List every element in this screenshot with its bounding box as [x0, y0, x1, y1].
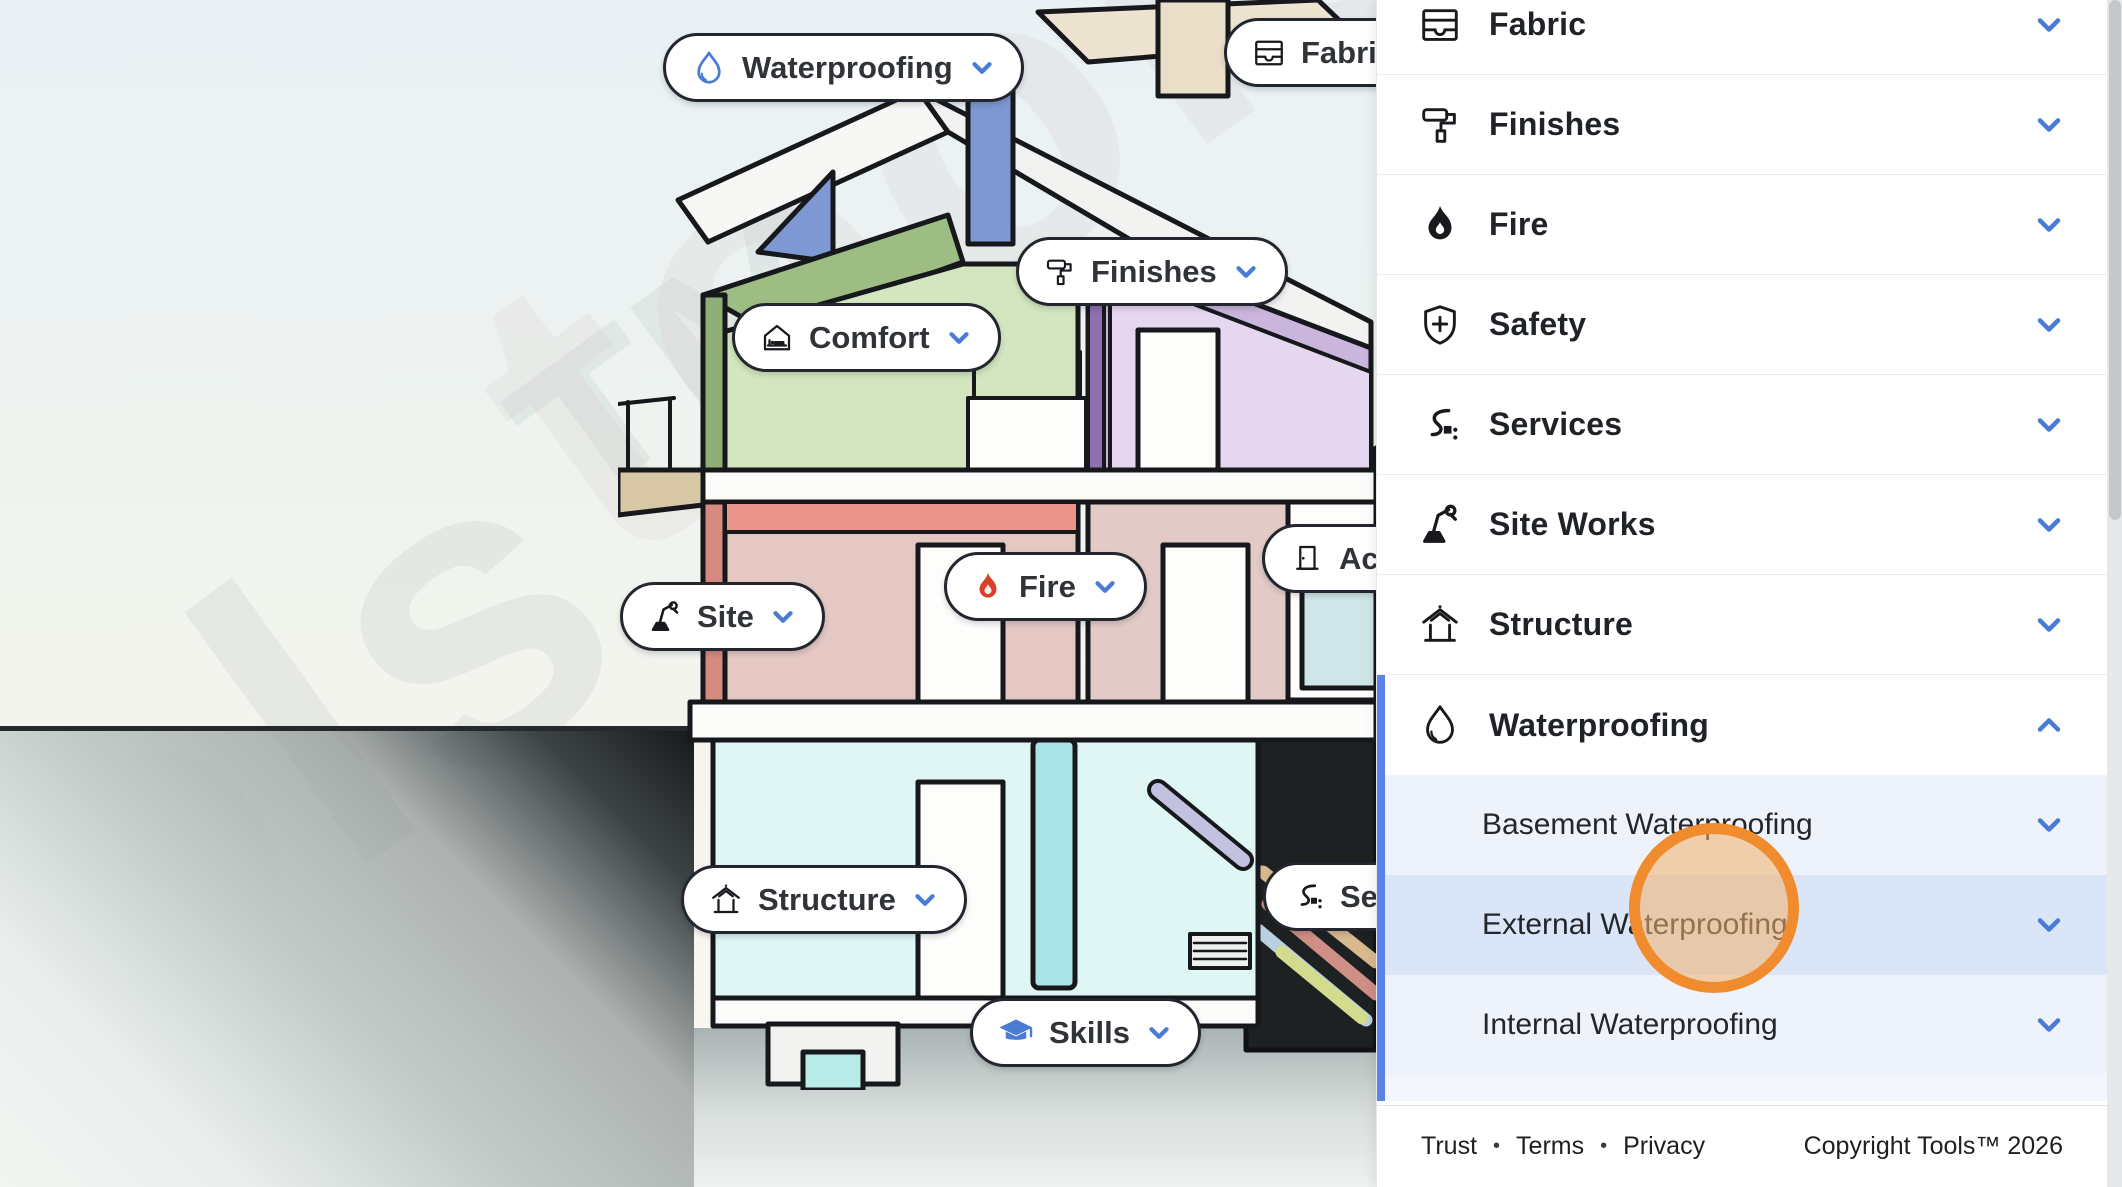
chevron-down-icon	[2031, 807, 2067, 843]
chevron-down-icon	[2031, 407, 2067, 443]
chip-structure[interactable]: Structure	[681, 865, 967, 934]
paint-roller-icon	[1417, 102, 1463, 148]
chevron-down-icon	[2031, 207, 2067, 243]
chip-services[interactable]: Services	[1263, 862, 1376, 931]
paint-roller-icon	[1043, 255, 1077, 289]
chip-label: Access	[1339, 541, 1376, 577]
chip-label: Waterproofing	[742, 50, 953, 86]
pipes-icon	[1417, 402, 1463, 448]
subitem-basement-waterproofing[interactable]: Basement Waterproofing	[1377, 775, 2107, 875]
droplet-icon	[690, 49, 728, 87]
panel-item-label: Waterproofing	[1489, 707, 1709, 744]
chip-fabric[interactable]: Fabric	[1224, 18, 1376, 87]
chevron-down-icon	[2031, 607, 2067, 643]
panel-section-waterproofing: Waterproofing Basement Waterproofing Ext…	[1377, 675, 2107, 1101]
panel-item-waterproofing[interactable]: Waterproofing	[1377, 675, 2107, 775]
panel-item-label: Safety	[1489, 306, 1586, 343]
chip-label: Services	[1340, 879, 1376, 915]
panel-item-label: Finishes	[1489, 106, 1620, 143]
panel-item-label: Site Works	[1489, 506, 1656, 543]
chip-site[interactable]: Site	[620, 582, 825, 651]
shield-plus-icon	[1417, 302, 1463, 348]
excavator-icon	[1417, 502, 1463, 548]
panel-item-structure[interactable]: Structure	[1377, 575, 2107, 675]
door-icon	[1289, 541, 1325, 577]
chip-fire[interactable]: Fire	[944, 552, 1147, 621]
subitem-label: Basement Waterproofing	[1482, 808, 1813, 842]
chevron-down-icon	[2031, 1007, 2067, 1043]
chevron-down-icon	[1144, 1018, 1174, 1048]
panel-item-label: Services	[1489, 406, 1622, 443]
footer-copyright: Copyright Tools™ 2026	[1804, 1132, 2063, 1161]
chip-access[interactable]: Access	[1262, 524, 1376, 593]
chip-label: Structure	[758, 882, 896, 918]
screen: tools™ tools™ tools™	[0, 0, 2122, 1187]
chip-label: Comfort	[809, 320, 930, 356]
pavilion-icon	[708, 882, 744, 918]
fabric-icon	[1251, 35, 1287, 71]
panel-item-label: Fire	[1489, 206, 1549, 243]
chevron-down-icon	[768, 602, 798, 632]
panel-item-finishes[interactable]: Finishes	[1377, 75, 2107, 175]
chevron-down-icon	[2031, 507, 2067, 543]
chip-label: Fabric	[1301, 35, 1376, 71]
panel-item-site-works[interactable]: Site Works	[1377, 475, 2107, 575]
category-list: Fabric Finishes	[1377, 0, 2107, 1101]
droplet-icon	[1417, 702, 1463, 748]
subitem-internal-waterproofing[interactable]: Internal Waterproofing	[1377, 975, 2107, 1075]
panel-item-label: Fabric	[1489, 6, 1586, 43]
panel-footer: Trust • Terms • Privacy Copyright Tools™…	[1377, 1105, 2107, 1187]
chevron-down-icon	[2031, 907, 2067, 943]
chevron-down-icon	[910, 885, 940, 915]
chip-comfort[interactable]: Comfort	[732, 303, 1001, 372]
panel-item-fabric[interactable]: Fabric	[1377, 0, 2107, 75]
chevron-down-icon	[2031, 107, 2067, 143]
chevron-down-icon	[1231, 257, 1261, 287]
chevron-down-icon	[944, 323, 974, 353]
footer-link-privacy[interactable]: Privacy	[1623, 1132, 1705, 1161]
excavator-icon	[647, 599, 683, 635]
flame-icon	[971, 570, 1005, 604]
chip-label: Site	[697, 599, 754, 635]
footer-links: Trust • Terms • Privacy	[1421, 1132, 1705, 1161]
flame-icon	[1417, 202, 1463, 248]
building-illustration-canvas: tools™ tools™ tools™	[0, 0, 1376, 1187]
chip-finishes[interactable]: Finishes	[1016, 237, 1288, 306]
chip-skills[interactable]: Skills	[970, 998, 1201, 1067]
footer-separator: •	[1600, 1135, 1607, 1158]
soil-gradient-left	[0, 731, 694, 1187]
chip-label: Skills	[1049, 1015, 1130, 1051]
subitem-external-waterproofing[interactable]: External Waterproofing	[1377, 875, 2107, 975]
chevron-down-icon	[2031, 307, 2067, 343]
chip-label: Fire	[1019, 569, 1076, 605]
chip-label: Finishes	[1091, 254, 1217, 290]
fabric-icon	[1417, 2, 1463, 48]
scrollbar-thumb[interactable]	[2109, 0, 2121, 520]
ground-line	[0, 726, 694, 731]
panel-scrollbar[interactable]	[2107, 0, 2122, 1187]
panel-item-safety[interactable]: Safety	[1377, 275, 2107, 375]
panel-item-services[interactable]: Services	[1377, 375, 2107, 475]
chevron-down-icon	[1090, 572, 1120, 602]
panel-item-label: Structure	[1489, 606, 1633, 643]
footer-link-terms[interactable]: Terms	[1516, 1132, 1584, 1161]
panel-item-fire[interactable]: Fire	[1377, 175, 2107, 275]
graduation-cap-icon	[997, 1014, 1035, 1052]
pavilion-icon	[1417, 602, 1463, 648]
subitem-label: Internal Waterproofing	[1482, 1008, 1778, 1042]
chip-waterproofing[interactable]: Waterproofing	[663, 33, 1024, 102]
subitem-label: External Waterproofing	[1482, 908, 1788, 942]
chevron-down-icon	[2031, 7, 2067, 43]
footer-link-trust[interactable]: Trust	[1421, 1132, 1477, 1161]
section-tail	[1377, 1075, 2107, 1101]
pipes-icon	[1290, 879, 1326, 915]
bed-house-icon	[759, 320, 795, 356]
chevron-up-icon	[2031, 707, 2067, 743]
footer-separator: •	[1493, 1135, 1500, 1158]
chevron-down-icon	[967, 53, 997, 83]
category-panel: Fabric Finishes	[1376, 0, 2122, 1187]
